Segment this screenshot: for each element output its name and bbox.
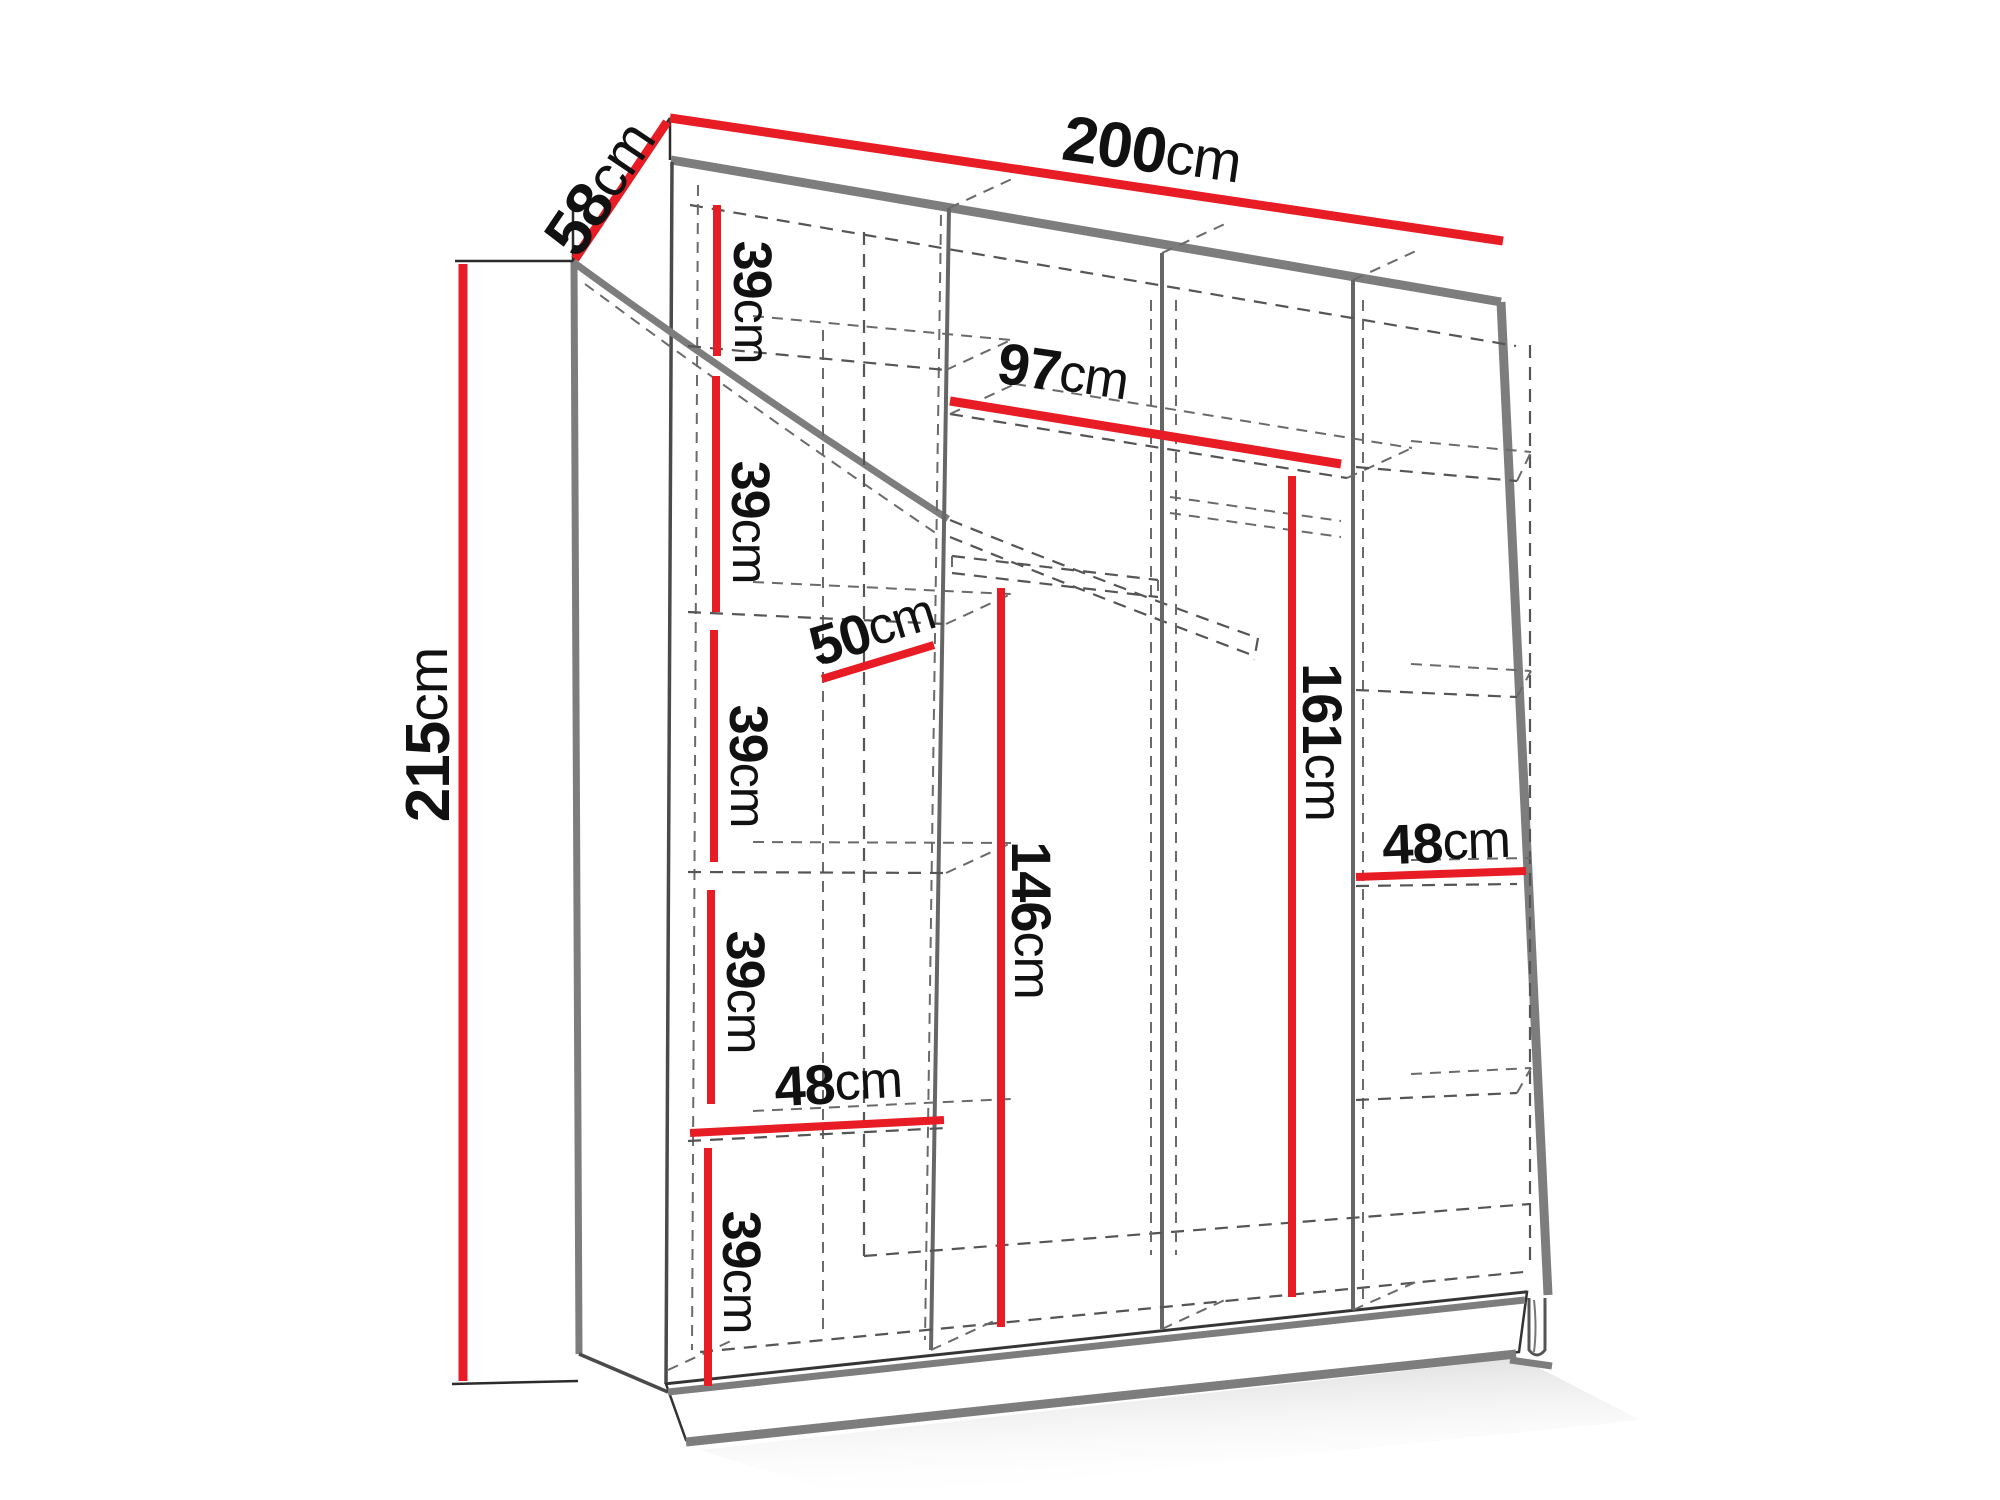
left-outer-edge (574, 262, 579, 1354)
rshelf-back-4 (1411, 1068, 1531, 1074)
interior-top-track-end (1254, 638, 1258, 660)
height-tick-bottom (452, 1381, 578, 1384)
dim-label-39-4: 39cm (715, 931, 775, 1054)
shelf-back-2 (753, 582, 1011, 594)
partition-left (931, 208, 949, 1350)
middle-shelf-front (950, 414, 1347, 478)
height-dimension-ticks (452, 261, 578, 1384)
wardrobe-dimension-diagram: 200cm 58cm 215cm 39cm 39cm 39cm 39cm 39c… (0, 0, 2000, 1500)
dim-label-48-left: 48cm (773, 1048, 904, 1118)
dimension-lines (463, 118, 1526, 1386)
rshelf-front-3 (1356, 884, 1517, 886)
depth-dash-bottom-0 (668, 1340, 733, 1370)
dim-label-146: 146cm (1001, 841, 1064, 999)
dim-label-48-right: 48cm (1381, 808, 1511, 875)
diagram-canvas: 200cm 58cm 215cm 39cm 39cm 39cm 39cm 39c… (0, 0, 2000, 1500)
rshelf-back-1 (1411, 441, 1531, 452)
dim-label-39-5: 39cm (711, 1211, 771, 1334)
right-outer-edge (1501, 302, 1548, 1295)
rail-right-back (1170, 513, 1341, 537)
dim-label-161: 161cm (1292, 663, 1355, 821)
shelf-front-3 (688, 872, 946, 873)
dim-label-97: 97cm (993, 330, 1132, 414)
shelf-back-3 (753, 842, 1011, 843)
rshelf-front-1 (1356, 467, 1517, 481)
dim-label-depth: 58cm (530, 108, 671, 268)
back-bottom-edge (864, 1204, 1530, 1256)
interior-top-track-dash-2 (950, 537, 1252, 655)
right-foot (1529, 1298, 1545, 1355)
rshelf-front-2 (1356, 690, 1517, 697)
dim-label-39-1: 39cm (722, 241, 782, 364)
dimension-labels: 200cm 58cm 215cm 39cm 39cm 39cm 39cm 39c… (394, 102, 1511, 1334)
left-bottom-diagonal (579, 1354, 668, 1392)
dim-line-97 (950, 401, 1341, 464)
left-stile-inner (692, 185, 698, 1350)
depth-dash-bottom-1 (931, 1320, 996, 1350)
shelf-back-1 (753, 316, 1011, 340)
dim-line-48-left (690, 1120, 944, 1133)
dim-label-39-3: 39cm (718, 705, 778, 828)
dim-label-height: 215cm (394, 648, 463, 822)
rshelf-back-2 (1411, 664, 1531, 671)
rshelf-front-4 (1356, 1093, 1517, 1100)
dim-label-39-2: 39cm (720, 461, 780, 584)
right-column-shelves (1356, 441, 1531, 1100)
middle-shelf-side-r (1347, 448, 1412, 478)
